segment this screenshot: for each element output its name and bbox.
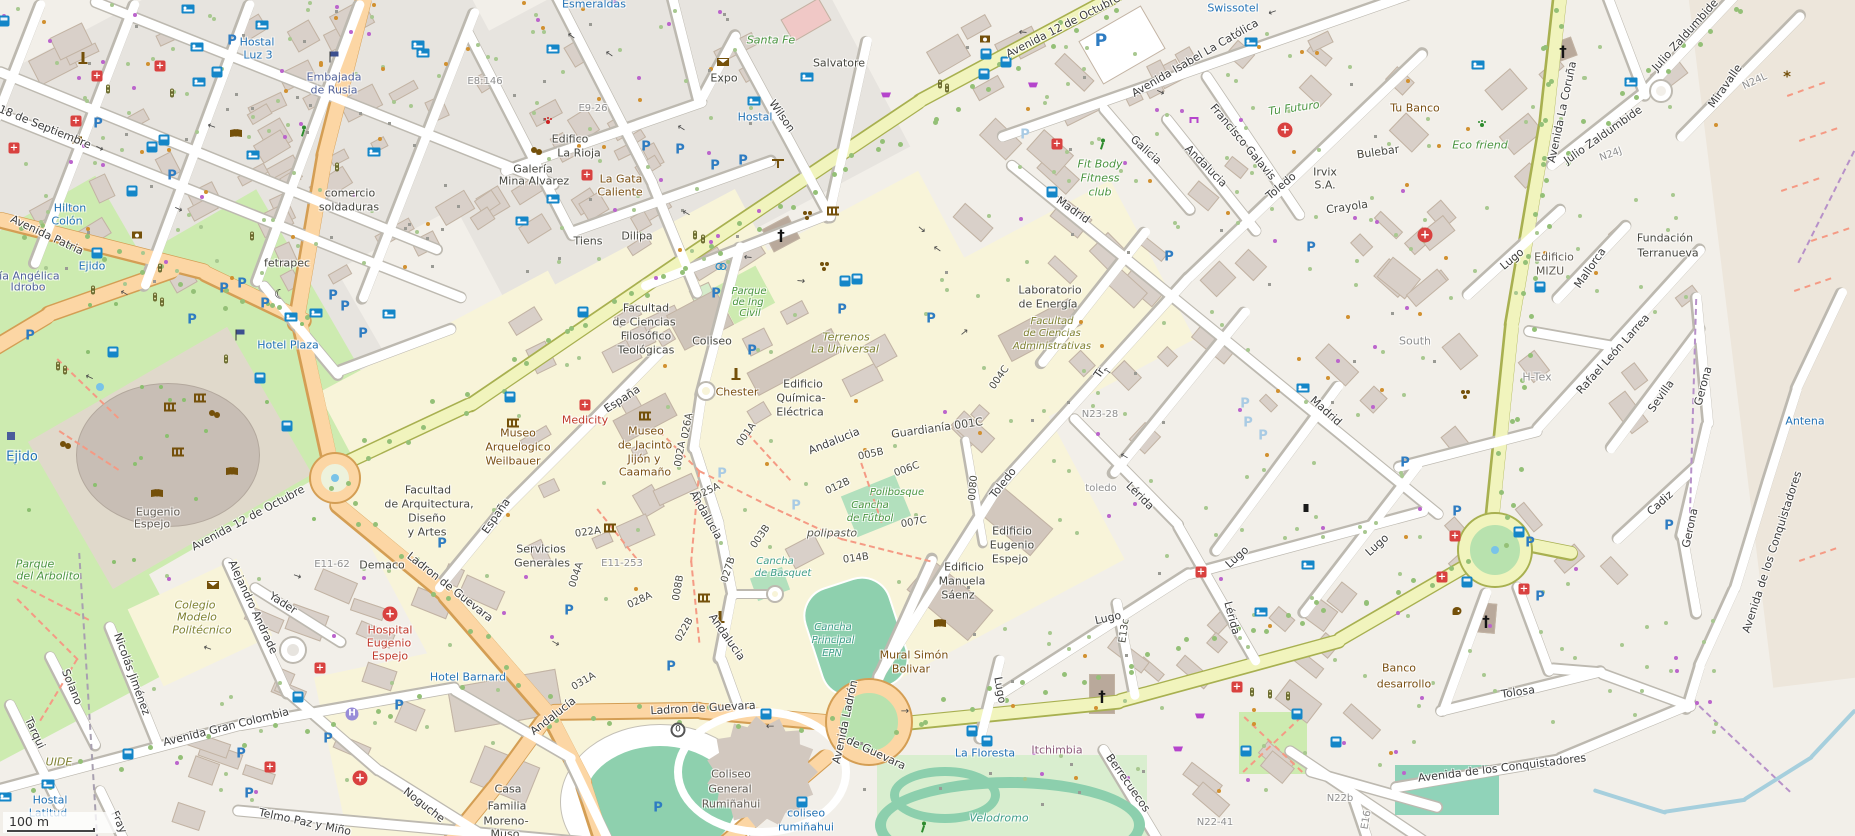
- map-label: Hostal: [240, 37, 275, 48]
- map-label: Salvatore: [813, 58, 865, 69]
- poi-dot: [976, 294, 980, 298]
- p-icon: P: [236, 747, 246, 762]
- poi-dot: [634, 587, 638, 591]
- map-label: Embajada: [307, 72, 362, 83]
- tl-icon: [106, 85, 110, 94]
- building: [171, 802, 206, 832]
- poi-dot: [413, 144, 416, 147]
- tl-icon: [153, 293, 157, 302]
- mus-icon: [604, 524, 616, 533]
- p-icon: P: [738, 154, 748, 169]
- tree: [387, 439, 392, 444]
- poi-dot: [1162, 421, 1165, 424]
- poi-dot: [1535, 231, 1539, 235]
- map-label: Cadiz: [1645, 489, 1675, 517]
- roundabout: [768, 587, 782, 601]
- tree: [305, 729, 310, 734]
- bus-icon: [505, 392, 516, 403]
- poi-dot: [769, 439, 773, 443]
- poi-dot: [743, 508, 747, 512]
- poi-dot: [485, 574, 489, 578]
- poi-dot: [1595, 289, 1599, 293]
- map-label: E8:146: [467, 77, 502, 87]
- poi-dot: [1712, 730, 1716, 734]
- tl-icon: [91, 286, 95, 295]
- poi-dot: [1155, 108, 1159, 112]
- arrow-icon: →: [1266, 5, 1277, 17]
- p-icon: P: [747, 344, 757, 359]
- poi-dot: [1355, 259, 1359, 263]
- map-label: Parque: [16, 559, 55, 570]
- poi-dot: [558, 257, 561, 260]
- tree: [894, 730, 899, 735]
- bluesq-icon: [7, 432, 15, 440]
- pal-icon: [1453, 607, 1462, 615]
- building: [350, 598, 387, 622]
- poi-dot: [589, 198, 592, 201]
- map-label: N22-41: [1197, 818, 1234, 828]
- building: [1599, 556, 1628, 586]
- hosp-icon: +: [1232, 682, 1243, 693]
- map-label: Tu Banco: [1390, 103, 1440, 114]
- poi-dot: [101, 163, 105, 167]
- poi-dot: [1091, 404, 1095, 408]
- cart-icon: [1173, 747, 1183, 754]
- tree: [85, 234, 90, 239]
- p-icon: P: [1664, 519, 1674, 534]
- bed-icon: [748, 97, 761, 106]
- poi-dot: [707, 151, 711, 155]
- tree: [1559, 24, 1564, 29]
- tree: [1543, 118, 1548, 123]
- tree: [406, 440, 411, 445]
- poi-dot: [1310, 596, 1314, 600]
- poi-dot: [300, 322, 304, 326]
- poi-dot: [1485, 206, 1489, 210]
- poi-dot: [1671, 193, 1675, 197]
- poi-dot: [431, 265, 434, 268]
- tree: [504, 665, 509, 670]
- poi-dot: [235, 93, 238, 96]
- bed-icon: [516, 217, 529, 226]
- people-icon: [820, 262, 824, 266]
- poi-dot: [1149, 479, 1153, 483]
- tl-icon: [1268, 690, 1272, 699]
- poi-dot: [125, 133, 128, 136]
- bed-icon: [285, 313, 298, 322]
- poi-dot: [308, 1, 312, 5]
- map-label: Edificio: [783, 379, 823, 390]
- map-label: Ejido: [79, 261, 106, 272]
- poi-dot: [1374, 521, 1378, 525]
- tree: [1396, 590, 1401, 595]
- poi-dot: [403, 265, 407, 269]
- poi-dot: [1079, 320, 1083, 324]
- poi-dot: [1354, 283, 1358, 287]
- p-icon: P: [260, 297, 270, 312]
- map-label: Colón: [51, 216, 82, 227]
- arrow-icon: →: [766, 720, 774, 730]
- poi-dot: [1418, 535, 1422, 539]
- tree: [1104, 15, 1109, 20]
- map-label: N23-28: [1082, 410, 1119, 420]
- map-label: Casa: [495, 784, 522, 795]
- poi-dot: [1409, 247, 1413, 251]
- poi-dot: [1011, 680, 1014, 683]
- poi-dot: [1096, 391, 1100, 395]
- tree: [629, 291, 634, 296]
- map-label: Mural Simón: [880, 650, 949, 661]
- poi-dot: [112, 560, 116, 564]
- tree: [569, 326, 574, 331]
- map-label: Tolosa: [1500, 684, 1535, 700]
- poi-dot: [702, 257, 706, 261]
- map-label: Hilton: [54, 203, 86, 214]
- bed-icon: [42, 780, 55, 789]
- map-label: Museo: [500, 428, 536, 439]
- map-label: Weilbauer: [485, 456, 540, 467]
- map-label: Itchimbia: [1031, 745, 1082, 756]
- poi-dot: [1321, 535, 1325, 539]
- tree: [1522, 385, 1527, 390]
- arrow-icon: →: [743, 251, 752, 262]
- mus-icon: [698, 594, 710, 603]
- scale-label: 100 m: [9, 814, 49, 829]
- poi-dot: [1082, 67, 1086, 71]
- poi-dot: [1695, 701, 1699, 705]
- bus-icon: [1514, 527, 1525, 538]
- poi-dot: [945, 288, 949, 292]
- run-icon: [919, 822, 927, 833]
- poi-dot: [167, 577, 171, 581]
- poi-dot: [1539, 630, 1543, 634]
- poi-dot: [312, 517, 316, 521]
- poi-dot: [175, 761, 179, 765]
- poi-dot: [1353, 360, 1356, 363]
- poi-dot: [1042, 409, 1046, 413]
- poi-dot: [335, 5, 339, 9]
- map-label: Muso: [491, 829, 520, 836]
- map-label: Espejo: [372, 651, 408, 662]
- poi-dot: [251, 115, 255, 119]
- poi-dot: [175, 269, 179, 273]
- map-label: Modelo: [177, 612, 217, 623]
- tree: [346, 481, 351, 486]
- poi-dot: [42, 20, 46, 24]
- flag-icon: [330, 52, 331, 63]
- arrow-icon: →: [291, 571, 302, 583]
- poi-dot: [1142, 770, 1145, 773]
- bus-icon: [981, 49, 992, 60]
- poi-dot: [204, 429, 208, 433]
- poi-dot: [303, 40, 306, 43]
- map-label: de Ciencias: [612, 317, 675, 328]
- poi-dot: [1444, 256, 1448, 260]
- poi-dot: [195, 130, 199, 134]
- arrow-icon: →: [796, 277, 805, 288]
- poi-dot: [1268, 283, 1271, 286]
- map-label: La Universal: [811, 344, 879, 355]
- p-icon: P: [323, 732, 333, 747]
- road: [1663, 798, 1747, 814]
- map-label: Fundación: [1637, 233, 1693, 244]
- map-label: General: [708, 784, 751, 795]
- road: [1512, 580, 1555, 676]
- masks-icon: [531, 147, 537, 153]
- tree: [898, 142, 903, 147]
- cam-icon: [980, 36, 990, 43]
- poi-dot: [1398, 572, 1402, 576]
- poi-dot: [1158, 572, 1161, 575]
- mus-icon: [164, 403, 176, 412]
- poi-dot: [135, 25, 138, 28]
- map-label: Manuela: [939, 576, 986, 587]
- poi-dot: [1047, 642, 1051, 646]
- poi-dot: [1412, 740, 1416, 744]
- p-icon: P: [1535, 590, 1545, 605]
- map-label: soldaduras: [319, 202, 379, 213]
- map-label: Edifico: [552, 134, 589, 145]
- map-label: Polibosque: [870, 488, 924, 498]
- poi-dot: [1358, 525, 1362, 529]
- poi-dot: [1003, 627, 1007, 631]
- pl-icon: P: [1020, 128, 1030, 143]
- map-label: S.A.: [1314, 180, 1335, 191]
- poi-dot: [1315, 51, 1319, 55]
- poi-dot: [532, 111, 536, 115]
- poi-dot: [1018, 165, 1022, 169]
- poi-dot: [1640, 689, 1644, 693]
- poi-dot: [1264, 788, 1268, 792]
- poi-dot: [220, 702, 224, 706]
- arrow-icon: →: [1018, 26, 1027, 37]
- poi-dot: [46, 210, 50, 214]
- tree: [813, 190, 818, 195]
- poi-dot: [219, 788, 223, 792]
- poi-dot: [1633, 713, 1637, 717]
- poi-dot: [1245, 475, 1249, 479]
- map-label: Bolivar: [892, 664, 930, 675]
- poi-dot: [1234, 79, 1238, 83]
- poi-dot: [541, 26, 545, 30]
- hosp-icon: +: [1519, 584, 1530, 595]
- poi-dot: [939, 787, 942, 790]
- poi-dot: [863, 788, 866, 791]
- poi-dot: [1026, 107, 1030, 111]
- p-icon: P: [437, 537, 447, 552]
- tl-icon: [693, 231, 697, 240]
- poi-dot: [1094, 706, 1098, 710]
- bus-icon: [147, 142, 158, 153]
- poi-dot: [159, 385, 163, 389]
- poi-dot: [1045, 95, 1049, 99]
- map-label: Eco friend: [1452, 140, 1507, 151]
- poi-dot: [24, 162, 28, 166]
- poi-dot: [1123, 412, 1127, 416]
- map-label: E11-253: [601, 559, 643, 569]
- poi-dot: [1250, 171, 1254, 175]
- map-label: Andalucia: [1183, 143, 1229, 189]
- poi-dot: [1162, 321, 1166, 325]
- map-label: La Rioja: [557, 148, 601, 159]
- poi-dot: [618, 48, 622, 52]
- poi-dot: [444, 62, 448, 66]
- road: [1809, 708, 1855, 759]
- poi-dot: [1639, 285, 1643, 289]
- tree: [718, 251, 723, 256]
- tree: [465, 392, 470, 397]
- poi-dot: [736, 235, 739, 238]
- poi-dot: [1363, 674, 1367, 678]
- tl-icon: [224, 355, 228, 364]
- tl-icon: [63, 366, 67, 375]
- tree: [970, 707, 975, 712]
- poi-dot: [1217, 789, 1221, 793]
- poi-dot: [1262, 744, 1266, 748]
- poi-dot: [1064, 45, 1068, 49]
- map-label: Avenida de los Conquistadores: [1417, 752, 1586, 784]
- poi-dot: [1262, 468, 1266, 472]
- poi-dot: [1125, 654, 1128, 657]
- poi-dot: [1180, 109, 1184, 113]
- poi-dot: [187, 213, 191, 217]
- poi-dot: [1283, 536, 1287, 540]
- p-icon: P: [1525, 536, 1535, 551]
- map-label: Cancha: [756, 557, 793, 567]
- poi-dot: [1433, 360, 1436, 363]
- poi-dot: [1421, 356, 1425, 360]
- poi-dot: [709, 240, 713, 244]
- bed-icon: [1245, 38, 1258, 47]
- fount-icon: [96, 383, 104, 391]
- poi-dot: [1052, 170, 1056, 174]
- poi-dot: [1573, 656, 1577, 660]
- poi-dot: [646, 165, 650, 169]
- poi-dot: [457, 205, 460, 208]
- shield0-icon: 0: [671, 723, 686, 738]
- map-label: Chester: [716, 387, 759, 398]
- poi-dot: [978, 431, 982, 435]
- poi-dot: [1220, 229, 1223, 232]
- map-label: Hostal: [33, 795, 68, 806]
- poi-dot: [1235, 190, 1239, 194]
- poi-dot: [476, 43, 480, 47]
- p-icon: P: [837, 303, 847, 318]
- poi-dot: [749, 106, 753, 110]
- tl-icon: [1286, 692, 1290, 701]
- map-label: de Fútbol: [847, 514, 894, 524]
- map-label: Lugo: [992, 676, 1007, 704]
- tree: [1129, 670, 1134, 675]
- poi-dot: [1417, 704, 1421, 708]
- p-icon: P: [1306, 241, 1316, 256]
- map-canvas[interactable]: 100 m PPPPPPPPPPPPPPPPPPPPPPPPPPPPPPPPPP…: [0, 0, 1855, 836]
- bus-icon: [967, 726, 978, 737]
- map-label: comercio: [325, 188, 375, 199]
- poi-dot: [1219, 577, 1223, 581]
- poi-dot: [1123, 161, 1127, 165]
- bus-icon: [0, 16, 10, 27]
- poi-dot: [1041, 803, 1044, 806]
- poi-dot: [1226, 211, 1230, 215]
- tree: [1051, 44, 1056, 49]
- tree: [512, 357, 517, 362]
- tree: [119, 767, 124, 772]
- poi-dot: [768, 545, 772, 549]
- map-label: Civil: [739, 309, 760, 319]
- poi-dot: [251, 107, 254, 110]
- poi-dot: [491, 741, 495, 745]
- map-label: E11-62: [314, 560, 349, 570]
- map-label: N24J: [1598, 146, 1623, 163]
- map-label: Diseño: [408, 513, 446, 524]
- poi-dot: [1394, 233, 1398, 237]
- building: [1442, 332, 1479, 370]
- church-icon: †: [777, 229, 785, 244]
- tree: [388, 714, 393, 719]
- poi-dot: [1645, 665, 1649, 669]
- poi-dot: [1300, 50, 1304, 54]
- poi-dot: [1204, 506, 1208, 510]
- tree: [1521, 291, 1526, 296]
- p-icon: P: [711, 287, 721, 302]
- p-icon: P: [1452, 505, 1462, 520]
- map-label: Parque: [731, 287, 766, 297]
- book-icon: [151, 489, 163, 497]
- bed-icon: [417, 49, 430, 58]
- poi-dot: [185, 138, 188, 141]
- map-label: Laboratorio: [1018, 285, 1081, 296]
- bus-icon: [255, 373, 266, 384]
- poi-dot: [1148, 179, 1152, 183]
- poi-dot: [543, 80, 546, 83]
- poi-dot: [1090, 141, 1094, 145]
- map-label: Hotel Plaza: [257, 340, 319, 351]
- poi-dot: [153, 280, 156, 283]
- tree: [1082, 680, 1087, 685]
- cam-icon: [132, 232, 142, 239]
- poi-dot: [1083, 654, 1087, 658]
- map-label: Avenida Gran Colombia: [162, 706, 290, 748]
- tree: [880, 139, 885, 144]
- star-icon: *: [1783, 70, 1791, 85]
- poi-dot: [27, 508, 31, 512]
- map-label: Idrobo: [11, 282, 46, 293]
- map-label: E9-26: [578, 104, 607, 114]
- poi-dot: [1405, 306, 1409, 310]
- hosp-icon: +: [155, 61, 166, 72]
- p-icon: P: [1095, 31, 1107, 51]
- tree: [1529, 314, 1534, 319]
- book-icon: [934, 619, 946, 627]
- map-label: Eugenio: [136, 507, 180, 518]
- poi-dot: [1023, 777, 1027, 781]
- run-icon: [299, 126, 307, 137]
- poi-dot: [654, 276, 658, 280]
- building: [314, 569, 359, 606]
- tree: [421, 425, 426, 430]
- road: [1597, 668, 1697, 712]
- poi-dot: [1292, 150, 1296, 154]
- map-label: Colegio: [174, 600, 215, 611]
- poi-dot: [1653, 310, 1657, 314]
- mus-icon: [827, 207, 839, 216]
- map-label: Swissotel: [1207, 3, 1258, 14]
- tree: [1540, 193, 1545, 198]
- p-icon: P: [653, 801, 663, 816]
- poi-dot: [577, 356, 581, 360]
- poi-dot: [132, 558, 136, 562]
